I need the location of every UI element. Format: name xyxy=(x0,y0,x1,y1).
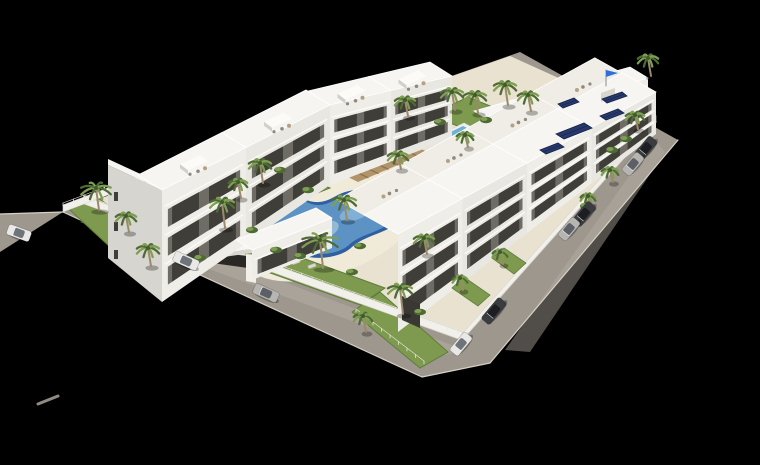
site-render-canvas xyxy=(0,0,760,465)
architectural-render xyxy=(0,0,760,465)
